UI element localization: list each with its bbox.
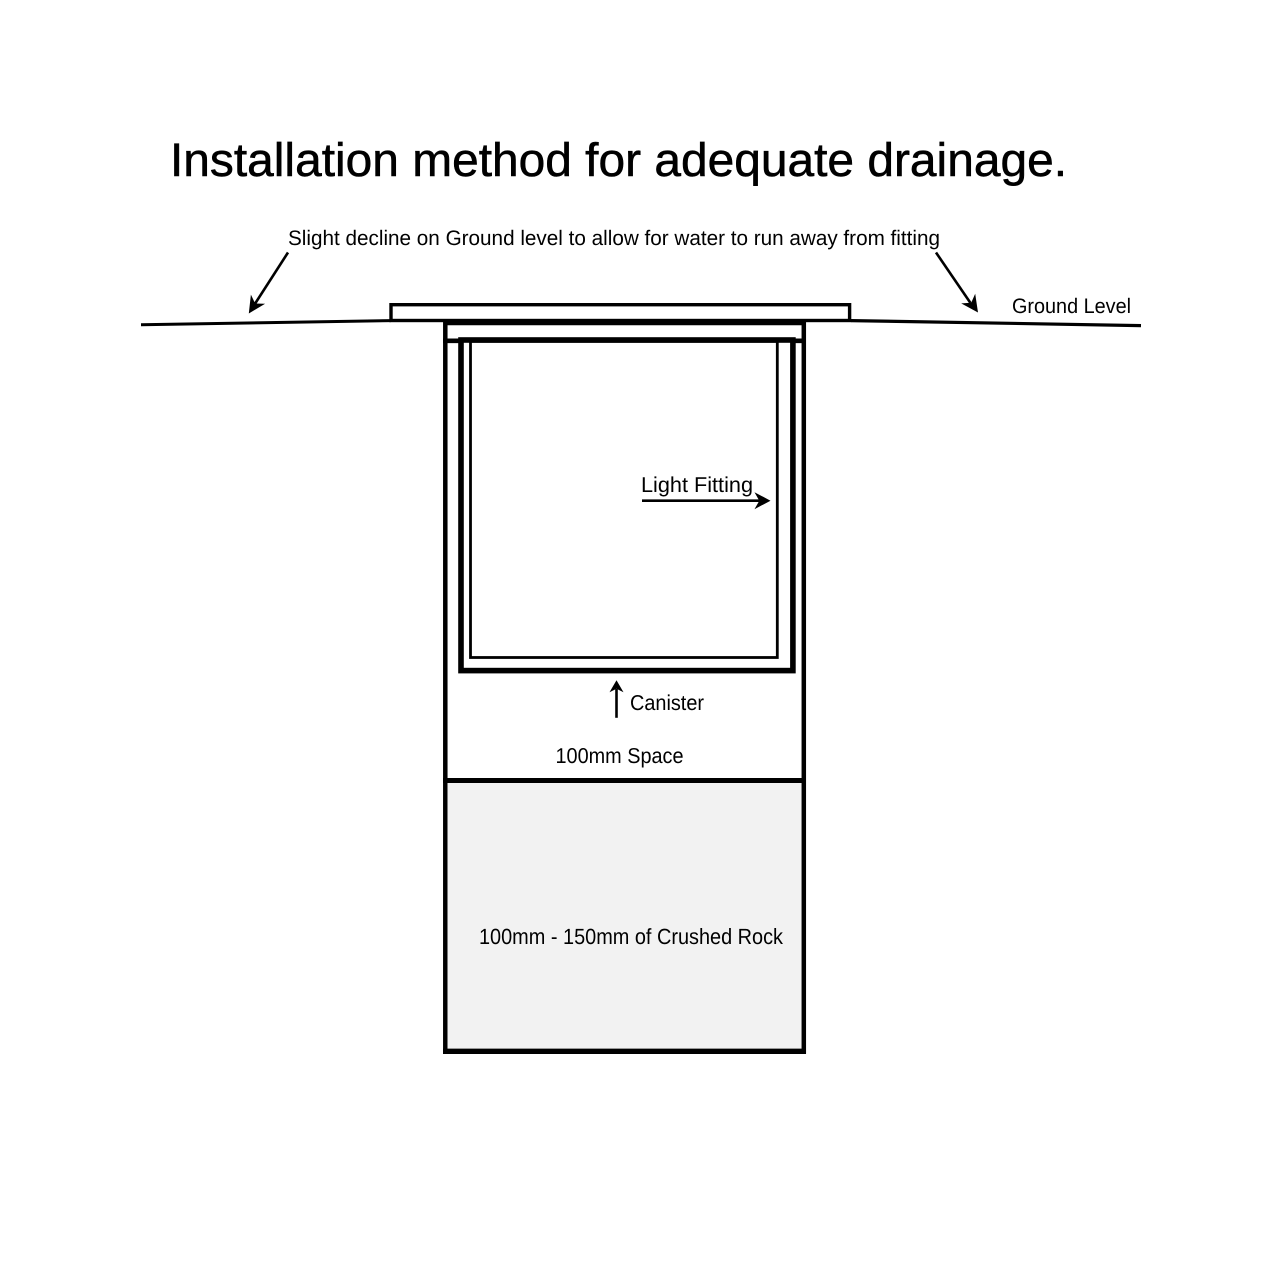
svg-text:Ground Level: Ground Level [1012,295,1131,318]
svg-text:Light Fitting: Light Fitting [641,473,753,497]
svg-text:100mm - 150mm of Crushed Rock: 100mm - 150mm of Crushed Rock [479,924,784,949]
svg-text:100mm Space: 100mm Space [556,744,684,768]
svg-text:Installation method for adequa: Installation method for adequate drainag… [170,133,1067,186]
svg-text:Slight decline on Ground level: Slight decline on Ground level to allow … [288,227,940,250]
svg-text:Canister: Canister [630,691,704,715]
